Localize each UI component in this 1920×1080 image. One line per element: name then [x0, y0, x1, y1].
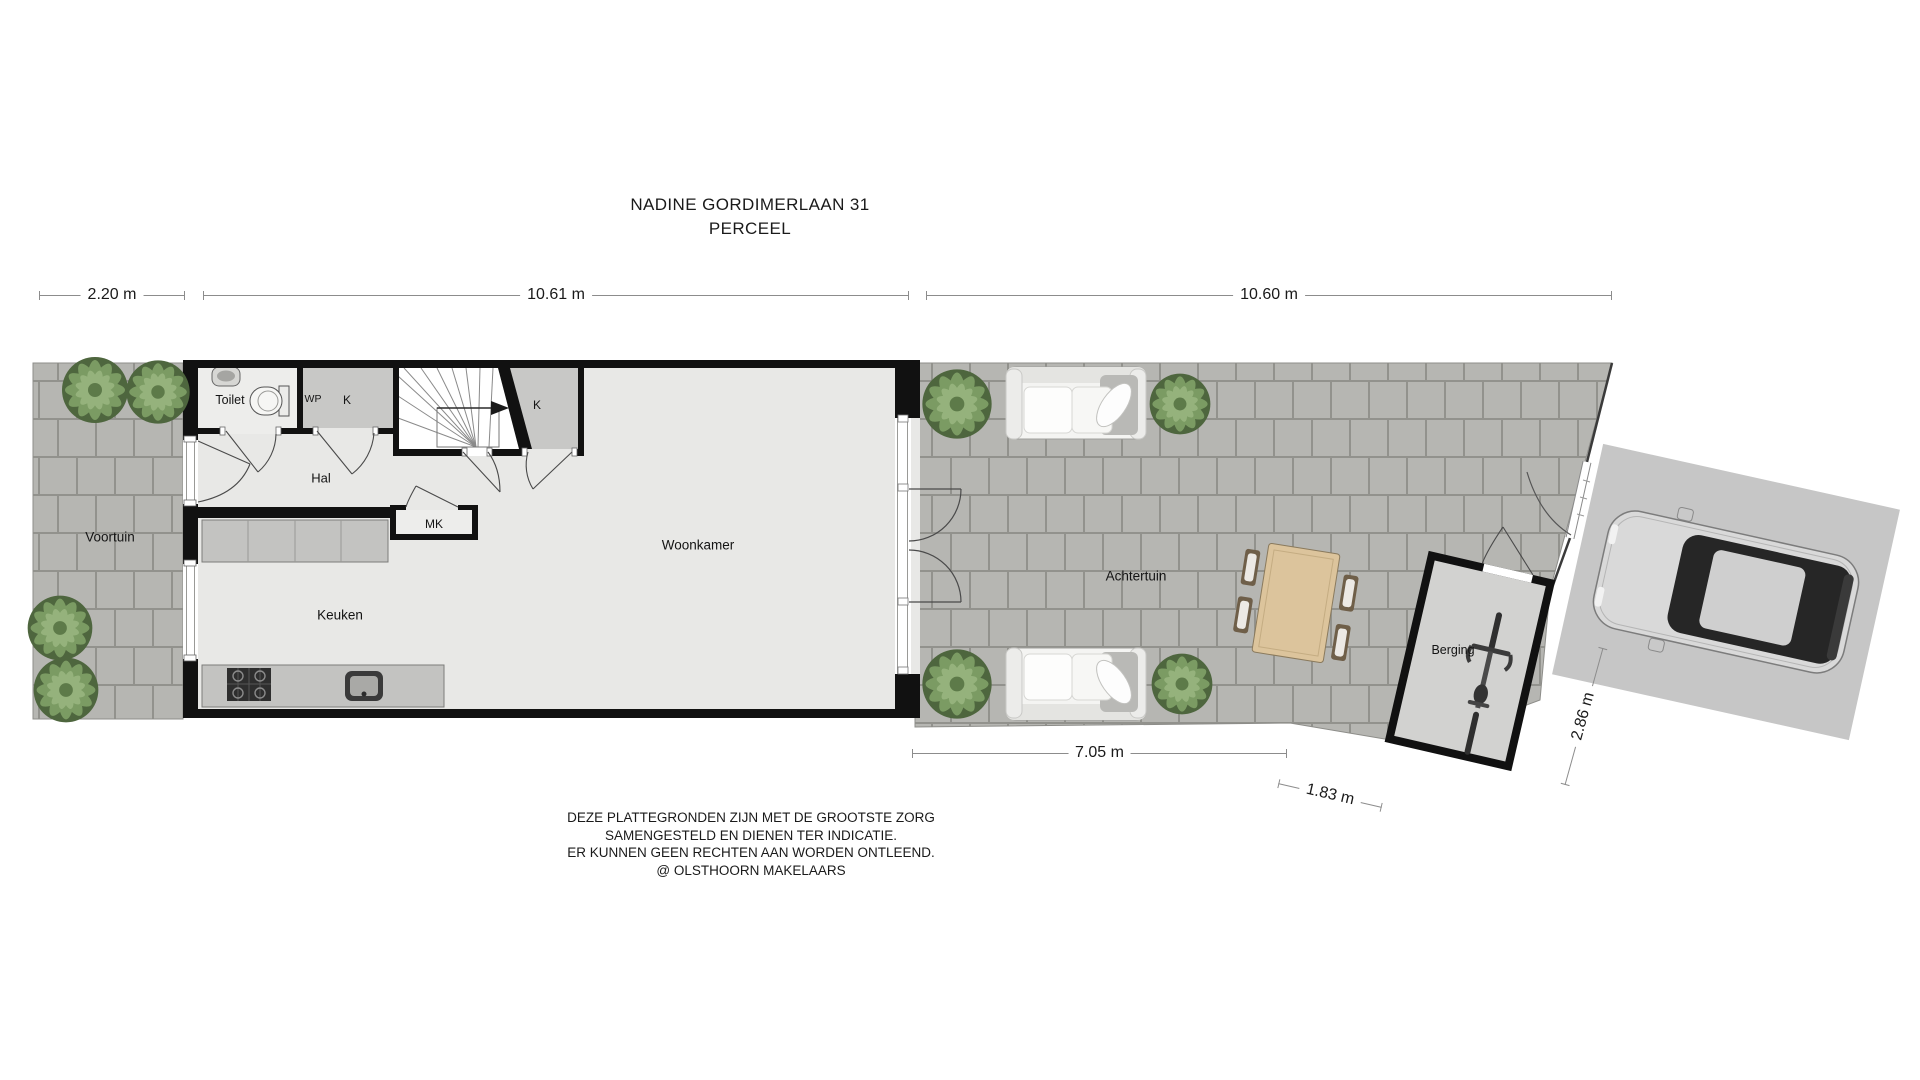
plant-icon: [1152, 654, 1213, 715]
room-label-voortuin: Voortuin: [85, 530, 135, 545]
floor-name: PERCEEL: [450, 217, 1050, 241]
stove-icon: [227, 668, 271, 701]
room-label-k-left: K: [343, 393, 351, 407]
room-label-hal: Hal: [311, 471, 331, 486]
room-label-berging: Berging: [1431, 643, 1474, 657]
plant-icon: [922, 369, 991, 438]
front-door-opening: [183, 440, 198, 504]
room-label-toilet: Toilet: [215, 393, 244, 407]
address-line: NADINE GORDIMERLAAN 31: [450, 193, 1050, 217]
room-label-achtertuin: Achtertuin: [1106, 569, 1167, 584]
plant-icon: [126, 360, 189, 423]
room-label-keuken: Keuken: [317, 608, 363, 623]
kitchen-lower-counter: [202, 665, 444, 707]
disclaimer-line: ER KUNNEN GEEN RECHTEN AAN WORDEN ONTLEE…: [451, 844, 1051, 862]
dimension-back-garden-depth: 7.05 m: [912, 749, 1287, 758]
sofa-icon: [1006, 367, 1146, 439]
toilet-icon: [250, 386, 289, 416]
disclaimer-line: @ OLSTHOORN MAKELAARS: [451, 862, 1051, 880]
sofa-icon: [1006, 648, 1146, 720]
plant-icon: [28, 596, 93, 661]
floorplan-page: NADINE GORDIMERLAAN 31 PERCEEL 2.20 m 10…: [0, 0, 1920, 1080]
plant-icon: [922, 649, 991, 718]
room-label-woonkamer: Woonkamer: [662, 538, 735, 553]
dimension-back-garden-width: 10.60 m: [926, 291, 1612, 300]
page-title: NADINE GORDIMERLAAN 31 PERCEEL: [450, 193, 1050, 241]
disclaimer: DEZE PLATTEGRONDEN ZIJN MET DE GROOTSTE …: [451, 809, 1051, 879]
plant-icon: [34, 658, 99, 723]
disclaimer-line: SAMENGESTELD EN DIENEN TER INDICATIE.: [451, 827, 1051, 845]
floorplan-drawing: [0, 0, 1920, 1080]
plant-icon: [62, 357, 128, 423]
kitchen-window: [183, 564, 198, 659]
kitchen-upper-cabinets: [202, 520, 388, 562]
dimension-front-width: 2.20 m: [39, 291, 185, 300]
room-label-k-right: K: [533, 398, 541, 412]
parking-area: [1552, 444, 1900, 740]
disclaimer-line: DEZE PLATTEGRONDEN ZIJN MET DE GROOTSTE …: [451, 809, 1051, 827]
dimension-house-width: 10.61 m: [203, 291, 909, 300]
washbasin-icon: [212, 367, 240, 386]
sink-icon: [345, 671, 383, 701]
plant-icon: [1150, 374, 1211, 435]
room-label-mk: MK: [425, 517, 443, 531]
room-label-wp: WP: [305, 393, 322, 405]
